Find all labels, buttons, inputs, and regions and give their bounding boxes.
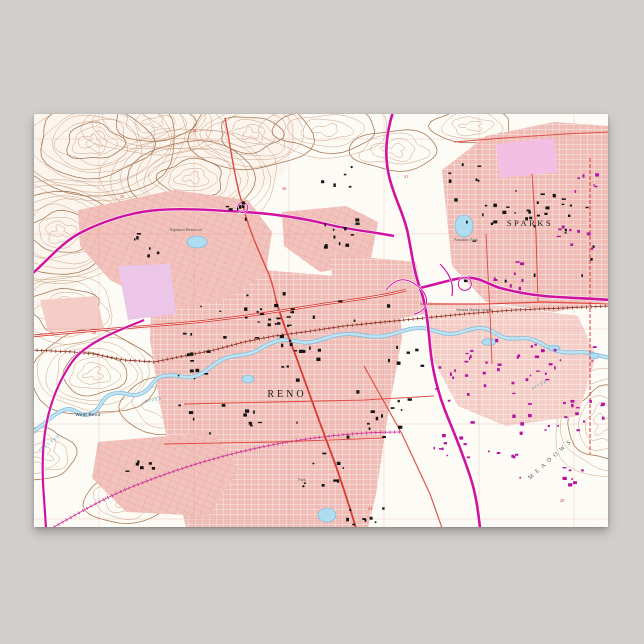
map-label-west-reno: West Reno xyxy=(76,412,101,417)
urban-area-lavender-sparks xyxy=(496,138,558,178)
section-number: 28 xyxy=(92,330,97,335)
pond-virginia-lake xyxy=(318,508,336,522)
section-number: 30 xyxy=(192,128,197,133)
pond-highland-reservoir-pond xyxy=(187,236,207,248)
urban-area-lavender-west xyxy=(118,264,176,320)
section-number: 31 xyxy=(404,174,409,179)
pond-paradise-pond xyxy=(455,215,473,237)
reno-sparks-topographic-map: RENOSPARKSWest RenoMEADOWSTRUCKEERIVERRI… xyxy=(34,114,608,527)
section-number: 36 xyxy=(282,186,287,191)
section-number: 35 xyxy=(120,194,125,199)
pond-oxbow-1 xyxy=(482,339,496,346)
map-label-river-w: RIVER xyxy=(144,395,163,404)
pond-idlewild-pond xyxy=(242,375,254,383)
map-label-park: Park xyxy=(298,478,306,482)
map-label-highland-reservoir: Highland Reservoir xyxy=(170,228,203,232)
map-label-paradise-park: Paradise Park xyxy=(454,238,478,242)
reno-map-poster: RENOSPARKSWest RenoMEADOWSTRUCKEERIVERRI… xyxy=(34,114,608,527)
map-label-nevada-mental-health: Nevada Mental Health xyxy=(456,308,492,312)
section-number: 20 xyxy=(560,498,565,503)
map-label-sparks: SPARKS xyxy=(507,218,553,228)
map-label-reno: RENO xyxy=(267,389,306,400)
product-background: RENOSPARKSWest RenoMEADOWSTRUCKEERIVERRI… xyxy=(0,0,644,644)
section-number: 24 xyxy=(368,506,373,511)
urban-area-riverfront-patch xyxy=(40,296,104,332)
map-label-meadows: MEADOWS xyxy=(527,437,575,481)
